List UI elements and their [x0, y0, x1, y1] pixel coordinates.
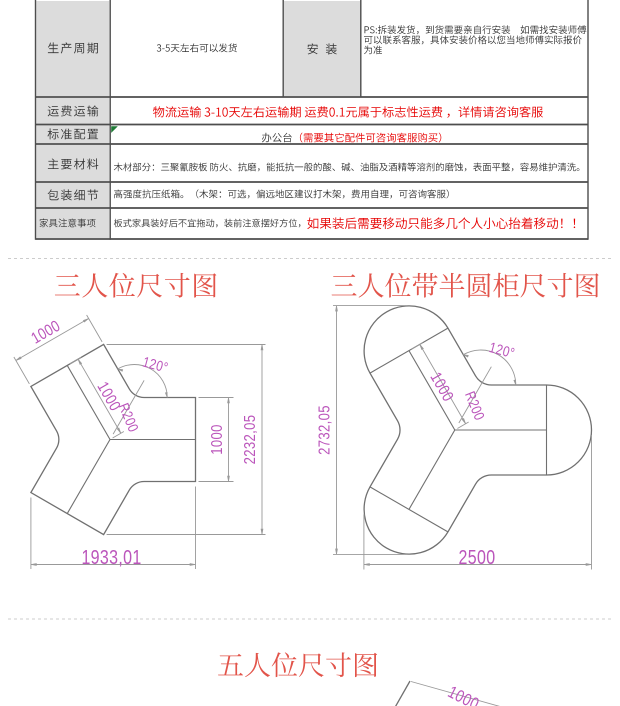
svg-text:120°: 120°	[141, 353, 170, 376]
svg-text:2232,05: 2232,05	[242, 415, 259, 465]
svg-text:2500: 2500	[459, 546, 496, 568]
svg-text:1000: 1000	[445, 683, 482, 706]
svg-text:1000: 1000	[209, 424, 226, 454]
svg-text:1933,01: 1933,01	[81, 546, 141, 568]
svg-text:R200: R200	[462, 389, 488, 423]
svg-text:2732,05: 2732,05	[316, 405, 333, 455]
svg-text:120°: 120°	[487, 339, 516, 362]
